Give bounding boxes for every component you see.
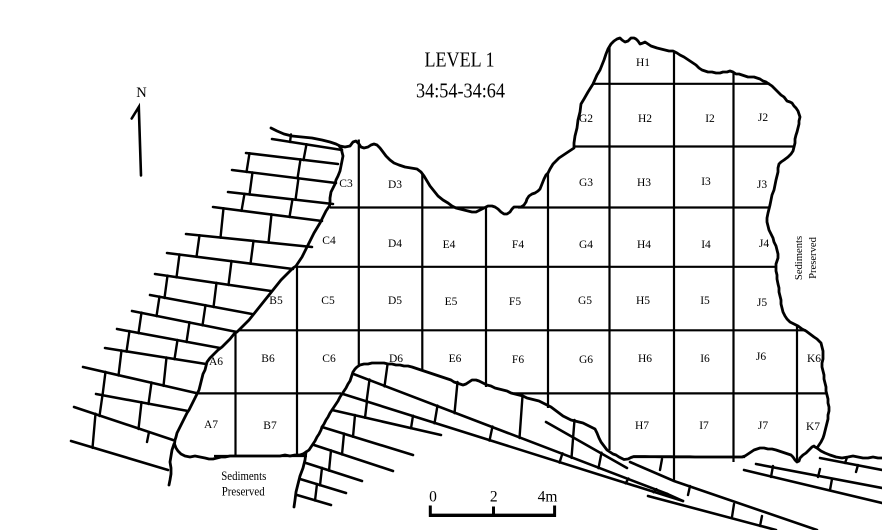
svg-text:34:54-34:64: 34:54-34:64 bbox=[416, 79, 505, 103]
svg-text:J5: J5 bbox=[757, 297, 767, 309]
svg-text:H3: H3 bbox=[637, 177, 651, 189]
svg-text:C3: C3 bbox=[339, 178, 353, 190]
svg-text:B7: B7 bbox=[263, 420, 277, 432]
svg-text:Preserved: Preserved bbox=[222, 485, 265, 499]
svg-text:2: 2 bbox=[490, 489, 498, 506]
svg-text:G6: G6 bbox=[579, 354, 593, 366]
svg-text:K6: K6 bbox=[807, 353, 821, 365]
svg-text:E5: E5 bbox=[445, 296, 458, 308]
svg-text:J4: J4 bbox=[759, 238, 769, 250]
svg-text:H1: H1 bbox=[636, 57, 650, 69]
svg-text:H6: H6 bbox=[638, 353, 652, 365]
svg-text:K7: K7 bbox=[806, 421, 820, 433]
svg-text:B6: B6 bbox=[261, 353, 275, 365]
svg-text:B5: B5 bbox=[269, 295, 283, 307]
svg-text:C5: C5 bbox=[321, 295, 335, 307]
svg-text:4m: 4m bbox=[538, 489, 558, 506]
svg-text:J2: J2 bbox=[758, 112, 768, 124]
svg-text:I5: I5 bbox=[700, 295, 710, 307]
svg-text:D4: D4 bbox=[388, 238, 402, 250]
svg-text:F6: F6 bbox=[512, 354, 524, 366]
svg-text:I4: I4 bbox=[701, 239, 711, 251]
svg-text:J7: J7 bbox=[758, 420, 768, 432]
svg-text:I2: I2 bbox=[705, 113, 715, 125]
svg-text:H5: H5 bbox=[636, 295, 650, 307]
svg-text:C6: C6 bbox=[322, 353, 336, 365]
svg-text:D5: D5 bbox=[388, 295, 402, 307]
svg-text:H2: H2 bbox=[638, 113, 652, 125]
svg-text:J6: J6 bbox=[756, 351, 766, 363]
svg-text:D3: D3 bbox=[388, 179, 402, 191]
svg-text:C4: C4 bbox=[322, 235, 336, 247]
svg-text:A7: A7 bbox=[204, 419, 218, 431]
svg-text:Preserved: Preserved bbox=[808, 236, 819, 278]
svg-text:N: N bbox=[136, 85, 147, 101]
svg-text:LEVEL 1: LEVEL 1 bbox=[425, 48, 495, 72]
svg-text:Sediments: Sediments bbox=[221, 469, 266, 483]
svg-text:H4: H4 bbox=[637, 239, 651, 251]
svg-text:I7: I7 bbox=[699, 420, 709, 432]
svg-text:F5: F5 bbox=[509, 296, 521, 308]
svg-text:D6: D6 bbox=[389, 353, 403, 365]
svg-text:G3: G3 bbox=[579, 177, 593, 189]
svg-text:H7: H7 bbox=[635, 420, 649, 432]
svg-text:G5: G5 bbox=[578, 295, 592, 307]
svg-text:F4: F4 bbox=[512, 239, 524, 251]
svg-text:J3: J3 bbox=[757, 179, 767, 191]
svg-text:G4: G4 bbox=[579, 239, 593, 251]
svg-text:0: 0 bbox=[429, 489, 437, 506]
svg-text:A6: A6 bbox=[209, 356, 223, 368]
svg-text:I6: I6 bbox=[700, 353, 710, 365]
svg-text:I3: I3 bbox=[701, 176, 711, 188]
svg-text:G2: G2 bbox=[579, 113, 593, 125]
svg-text:E4: E4 bbox=[443, 239, 456, 251]
svg-text:E6: E6 bbox=[449, 353, 462, 365]
svg-text:Sediments: Sediments bbox=[794, 236, 805, 280]
